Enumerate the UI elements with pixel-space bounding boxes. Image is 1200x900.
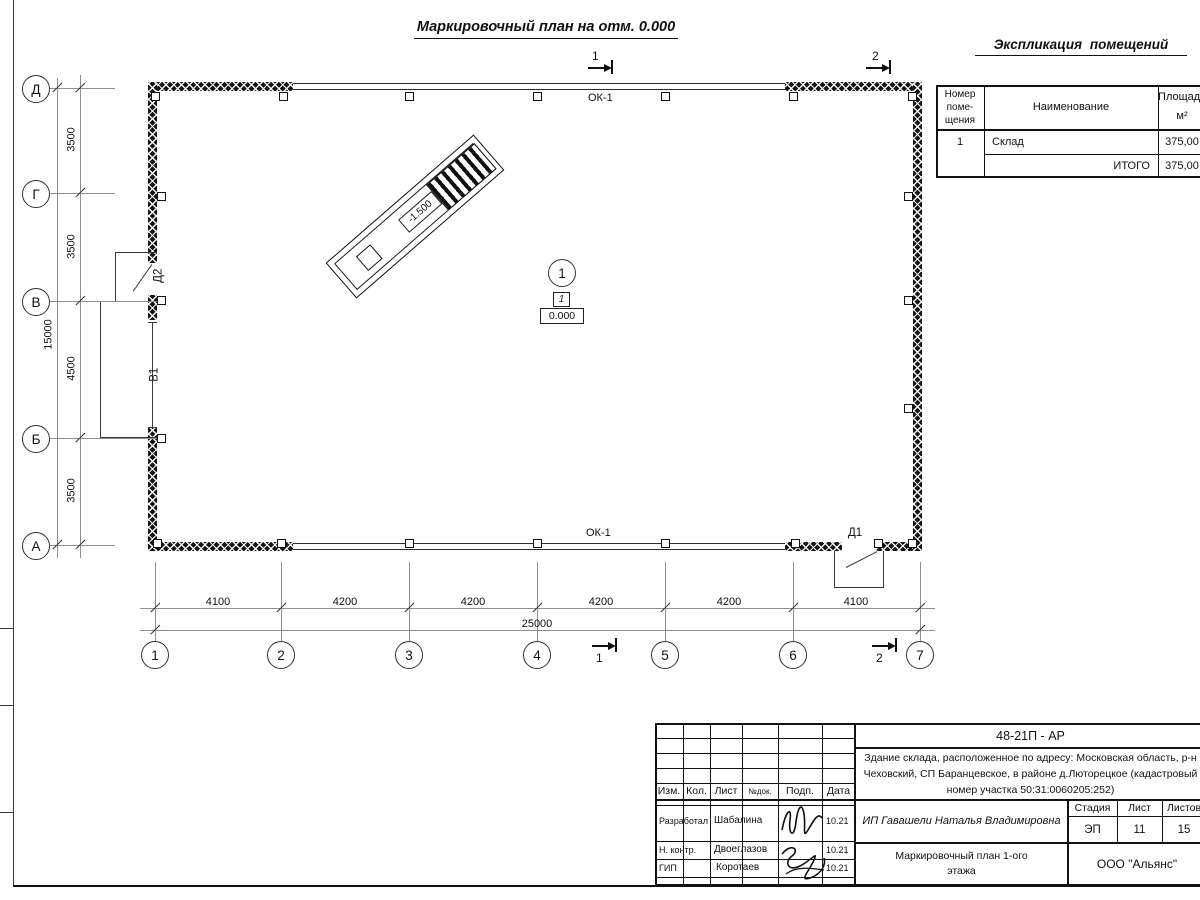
section-label: 1 [596, 652, 603, 664]
fold-mark [0, 812, 13, 813]
tb-doc-code: 48-21П - АР [855, 725, 1200, 747]
axis-bubble: 5 [651, 641, 679, 669]
col-header-area: Площадь м² [1158, 85, 1200, 129]
section-label: 2 [872, 50, 879, 62]
column [791, 539, 800, 548]
tb-col-kol: Кол. [683, 783, 710, 799]
tb-address: Здание склада, расположенное по адресу: … [855, 749, 1200, 799]
signature [778, 800, 826, 842]
vestibule-line [834, 587, 884, 588]
column [874, 539, 883, 548]
section-label: 2 [876, 652, 883, 664]
tb-sheet-label: Лист [1117, 800, 1162, 816]
axis-bubble: Б [22, 425, 50, 453]
column [904, 192, 913, 201]
tb-name: Двоеглазов [714, 845, 767, 855]
room-axis-number: 1 [558, 266, 566, 281]
axis-label: 3 [405, 648, 413, 663]
room-number-tag: 1 [553, 292, 570, 307]
axis-line [48, 301, 157, 302]
col-header-name: Наименование [984, 85, 1158, 129]
axis-line [48, 545, 115, 546]
axis-line [48, 88, 115, 89]
wall-segment [785, 82, 922, 91]
signature [778, 840, 830, 884]
gate-label: В1 [149, 355, 161, 395]
tb-col-ndok: №док. [742, 783, 778, 799]
fold-mark [0, 628, 13, 629]
wall-segment [913, 82, 922, 551]
axis-label: 4 [533, 648, 541, 663]
column [904, 296, 913, 305]
vestibule-line [115, 252, 157, 253]
axis-bubble: 2 [267, 641, 295, 669]
wall-segment [148, 542, 293, 551]
door-swing [846, 551, 878, 568]
tb-line [655, 753, 855, 754]
section-bar [615, 638, 617, 652]
axis-line [48, 438, 157, 439]
tb-name: Коротаев [716, 863, 759, 873]
wall-segment [148, 428, 157, 551]
section-bar [889, 60, 891, 74]
table-cell-name: Склад [984, 130, 1158, 154]
door2-label: Д2 [153, 256, 165, 296]
dim-value: 3500 [67, 120, 78, 160]
col-header-num: Номер поме- щения [936, 85, 984, 129]
tb-doc-name: Маркировочный план 1-ого этажа [856, 844, 1067, 884]
ramp: -1.500 [326, 134, 505, 298]
column [533, 92, 542, 101]
gate-opening-tick [148, 427, 157, 428]
tb-col-podp: Подп. [778, 783, 822, 799]
tb-line [655, 768, 855, 769]
column [533, 539, 542, 548]
table-total-value: 375,00 [1158, 155, 1200, 176]
axis-bubble: Д [22, 75, 50, 103]
tb-sheets-label: Листов [1162, 800, 1200, 816]
dim-line [57, 78, 58, 558]
door1-label: Д1 [848, 528, 862, 540]
wall-segment [148, 82, 293, 91]
dim-total: 25000 [507, 619, 567, 630]
column [157, 192, 166, 201]
dim-line [80, 75, 81, 558]
vestibule-line [115, 252, 116, 302]
dim-value: 4200 [443, 597, 503, 608]
tb-role: ГИП [659, 864, 677, 873]
axis-label: 7 [916, 648, 924, 663]
window-label-top: ОК-1 [588, 93, 613, 104]
table-total-label: ИТОГО [984, 155, 1158, 176]
dim-value: 4200 [315, 597, 375, 608]
dock-line [100, 301, 101, 438]
axis-bubble: 4 [523, 641, 551, 669]
sheet-frame-left [13, 0, 14, 887]
vestibule-line [834, 551, 835, 588]
axis-line [48, 193, 115, 194]
wall-segment [148, 295, 157, 320]
room-level-tag: 0.000 [540, 308, 584, 324]
axis-bubble: 1 [141, 641, 169, 669]
section-bar [611, 60, 613, 74]
vestibule-line [883, 551, 884, 588]
dim-value: 4200 [699, 597, 759, 608]
section-label: 1 [592, 50, 599, 62]
tb-name: Шабалина [714, 816, 762, 826]
tb-col-list: Лист [710, 783, 742, 799]
table-border [936, 176, 1200, 178]
dim-value: 4100 [826, 597, 886, 608]
room-axis-bubble: 1 [548, 259, 576, 287]
column [405, 539, 414, 548]
dim-value: 4100 [188, 597, 248, 608]
axis-label: 2 [277, 648, 285, 663]
tb-sheet-value: 11 [1117, 817, 1162, 842]
column [405, 92, 414, 101]
axis-label: 6 [789, 648, 797, 663]
dim-value: 3500 [67, 471, 78, 511]
column [157, 296, 166, 305]
column [908, 539, 917, 548]
axis-label: Д [31, 82, 40, 97]
door-swing [133, 264, 153, 292]
column [908, 92, 917, 101]
tb-sheets-value: 15 [1162, 817, 1200, 842]
tb-date: 10.21 [826, 817, 849, 826]
window-band-top [293, 83, 785, 90]
column [153, 539, 162, 548]
dim-value: 4200 [571, 597, 631, 608]
column [661, 539, 670, 548]
axis-label: 5 [661, 648, 669, 663]
column [157, 434, 166, 443]
table-cell-area: 375,00 [1158, 130, 1200, 154]
tb-client: ИП Гавашели Наталья Владимировна [856, 801, 1067, 841]
axis-label: Г [32, 187, 39, 202]
dim-value: 3500 [67, 227, 78, 267]
column [789, 92, 798, 101]
column [151, 92, 160, 101]
dim-total: 15000 [44, 310, 55, 360]
tb-border [655, 884, 1200, 886]
dim-value: 4500 [67, 349, 78, 389]
axis-label: 1 [151, 648, 159, 663]
axis-bubble: 6 [779, 641, 807, 669]
tb-stage-value: ЭП [1068, 817, 1117, 842]
gate-opening-tick [148, 322, 157, 323]
table-cell-num: 1 [936, 130, 984, 154]
page-title: Маркировочный план на отм. 0.000 [414, 20, 678, 39]
tb-col-izm: Изм. [655, 783, 683, 799]
tb-stage-label: Стадия [1068, 800, 1117, 816]
axis-bubble: А [22, 532, 50, 560]
tb-role: Разработал [659, 817, 708, 826]
dim-line [140, 630, 935, 631]
axis-label: Б [32, 432, 41, 447]
axis-bubble: 7 [906, 641, 934, 669]
fold-mark [0, 705, 13, 706]
axis-bubble: Г [22, 180, 50, 208]
axis-label: А [31, 539, 40, 554]
tb-line [655, 738, 855, 739]
axis-bubble: 3 [395, 641, 423, 669]
column [904, 404, 913, 413]
explication-title: Экспликация помещений [975, 38, 1187, 56]
column [277, 539, 286, 548]
section-bar [895, 638, 897, 652]
window-label-bottom: ОК-1 [586, 528, 611, 539]
axis-label: В [31, 295, 40, 310]
tb-col-data: Дата [822, 783, 855, 799]
column [661, 92, 670, 101]
tb-role: Н. контр. [659, 846, 696, 855]
tb-org: ООО "Альянс" [1068, 844, 1200, 884]
column [279, 92, 288, 101]
wall-segment [148, 82, 157, 263]
